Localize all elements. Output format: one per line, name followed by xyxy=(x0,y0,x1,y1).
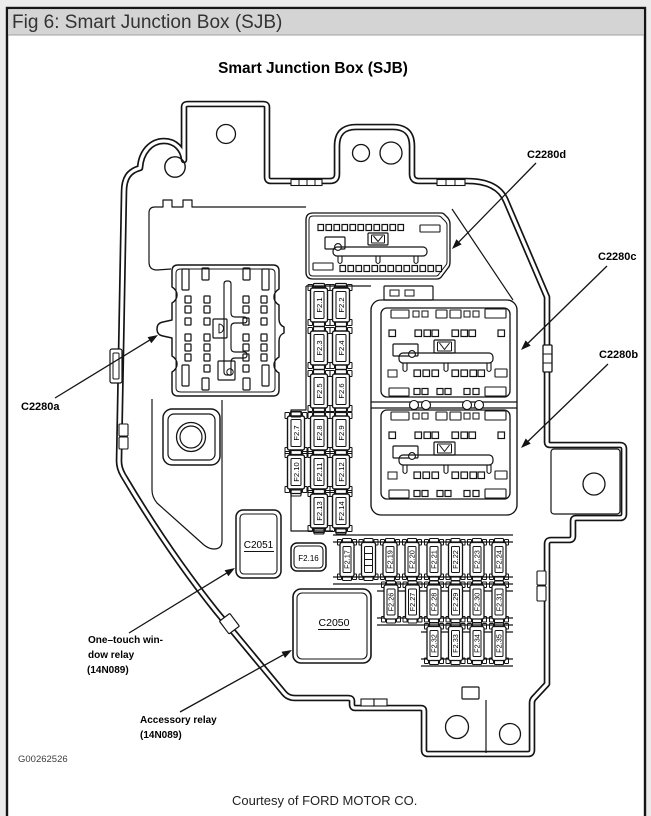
svg-text:F2.34: F2.34 xyxy=(473,634,482,653)
svg-text:F2.32: F2.32 xyxy=(430,634,439,653)
svg-text:F2.5: F2.5 xyxy=(315,383,324,398)
svg-text:Fig 6: Smart Junction Box (SJB: Fig 6: Smart Junction Box (SJB) xyxy=(12,12,282,33)
svg-text:dow relay: dow relay xyxy=(88,650,135,661)
svg-text:(14N089): (14N089) xyxy=(87,665,129,676)
svg-text:F2.3: F2.3 xyxy=(315,340,324,355)
svg-text:F2.4: F2.4 xyxy=(337,340,346,355)
svg-text:F2.35: F2.35 xyxy=(495,634,504,653)
svg-text:Smart Junction Box (SJB): Smart Junction Box (SJB) xyxy=(218,60,408,77)
svg-text:C2280b: C2280b xyxy=(599,349,638,361)
svg-text:F2.14: F2.14 xyxy=(337,501,346,520)
svg-text:C2280d: C2280d xyxy=(527,149,566,161)
svg-text:F2.23: F2.23 xyxy=(473,550,482,569)
svg-text:F2.17: F2.17 xyxy=(343,550,352,569)
svg-text:F2.11: F2.11 xyxy=(315,463,324,482)
svg-text:C2280a: C2280a xyxy=(21,401,60,413)
svg-text:F2.8: F2.8 xyxy=(315,425,324,440)
svg-text:G00262526: G00262526 xyxy=(18,754,68,765)
svg-text:One–touch win-: One–touch win- xyxy=(88,635,163,646)
svg-text:C2050: C2050 xyxy=(319,617,350,629)
svg-text:F2.1: F2.1 xyxy=(315,297,324,312)
svg-text:F2.28: F2.28 xyxy=(430,593,439,612)
svg-text:F2.2: F2.2 xyxy=(337,297,346,312)
svg-text:F2.30: F2.30 xyxy=(473,593,482,612)
svg-text:F2.9: F2.9 xyxy=(337,425,346,440)
svg-text:F2.26: F2.26 xyxy=(387,593,396,612)
svg-text:F2.22: F2.22 xyxy=(451,550,460,569)
svg-text:(14N089): (14N089) xyxy=(140,730,182,741)
svg-text:F2.33: F2.33 xyxy=(451,634,460,653)
svg-text:F2.13: F2.13 xyxy=(315,501,324,520)
svg-text:F2.7: F2.7 xyxy=(292,425,301,440)
svg-text:Accessory relay: Accessory relay xyxy=(140,715,217,726)
svg-text:Courtesy of FORD MOTOR CO.: Courtesy of FORD MOTOR CO. xyxy=(232,793,417,808)
svg-text:F2.29: F2.29 xyxy=(451,593,460,612)
svg-text:F2.10: F2.10 xyxy=(292,462,301,481)
svg-text:F2.12: F2.12 xyxy=(337,462,346,481)
svg-text:C2051: C2051 xyxy=(244,540,274,551)
svg-text:F2.27: F2.27 xyxy=(408,593,417,612)
svg-text:F2.20: F2.20 xyxy=(408,550,417,569)
svg-text:C2280c: C2280c xyxy=(598,251,637,263)
svg-text:F2.16: F2.16 xyxy=(298,554,319,563)
svg-text:F2.24: F2.24 xyxy=(495,550,504,569)
svg-text:F2.31: F2.31 xyxy=(495,593,504,612)
svg-text:F2.6: F2.6 xyxy=(337,383,346,398)
svg-text:F2.21: F2.21 xyxy=(430,550,439,569)
svg-text:F2.19: F2.19 xyxy=(386,550,395,569)
